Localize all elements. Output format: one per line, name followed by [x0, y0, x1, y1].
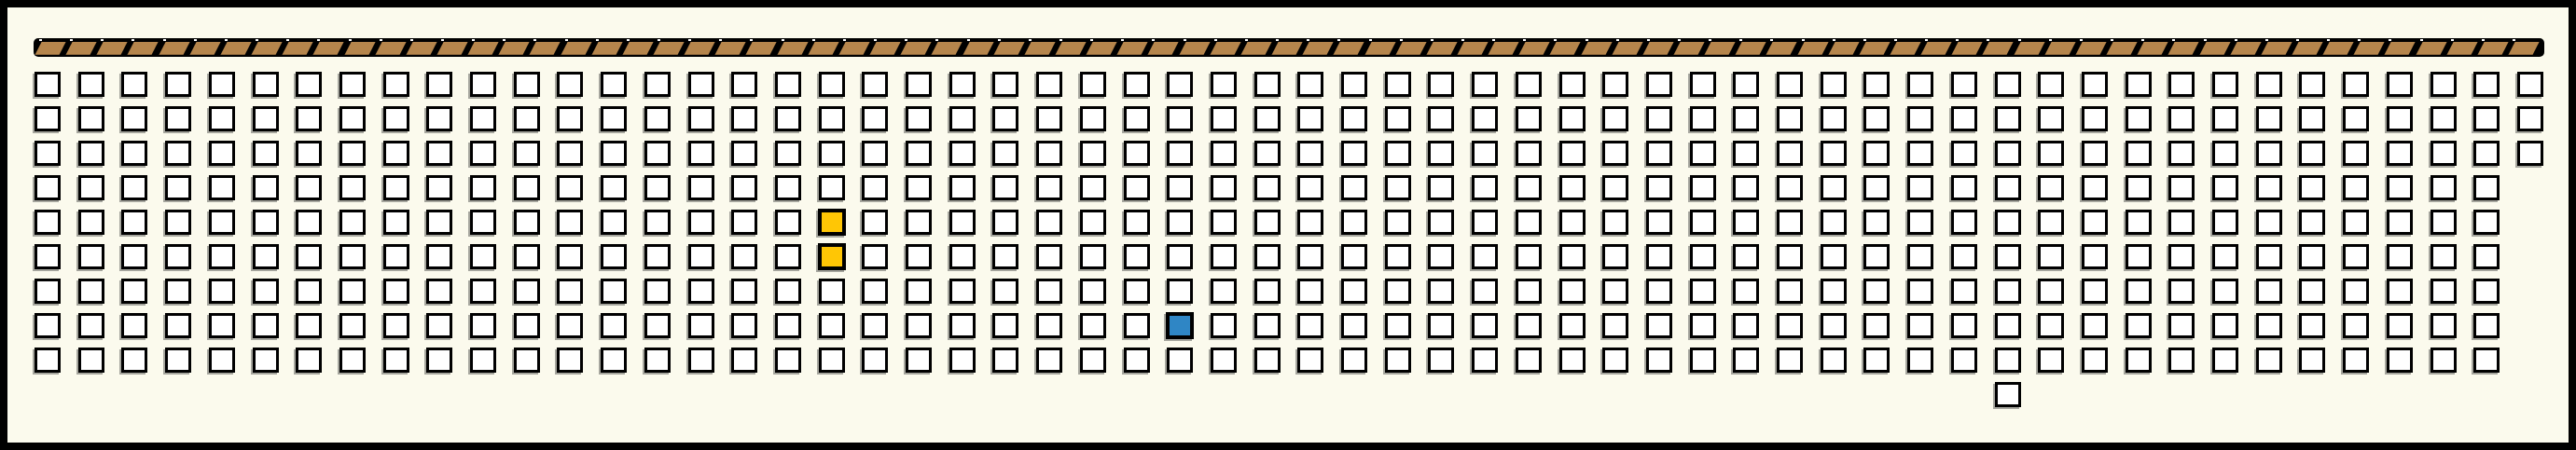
- seat[interactable]: [906, 313, 932, 338]
- seat-selected-yellow[interactable]: [818, 243, 846, 270]
- seat[interactable]: [2387, 72, 2413, 97]
- seat[interactable]: [253, 106, 279, 131]
- seat[interactable]: [557, 279, 583, 304]
- seat[interactable]: [992, 106, 1018, 131]
- seat[interactable]: [1472, 348, 1498, 373]
- seat[interactable]: [2126, 72, 2152, 97]
- seat[interactable]: [1690, 279, 1716, 304]
- seat[interactable]: [383, 348, 409, 373]
- seat[interactable]: [1733, 244, 1759, 269]
- seat[interactable]: [2038, 141, 2064, 166]
- seat[interactable]: [1124, 175, 1150, 200]
- seat[interactable]: [1385, 244, 1411, 269]
- seat[interactable]: [1297, 244, 1323, 269]
- seat[interactable]: [1863, 175, 1890, 200]
- seat[interactable]: [253, 244, 279, 269]
- seat[interactable]: [1341, 141, 1367, 166]
- seat[interactable]: [1254, 348, 1281, 373]
- seat[interactable]: [862, 72, 888, 97]
- seat[interactable]: [2343, 244, 2369, 269]
- seat[interactable]: [209, 279, 235, 304]
- seat[interactable]: [2038, 72, 2064, 97]
- seat[interactable]: [1080, 313, 1106, 338]
- seat[interactable]: [514, 244, 540, 269]
- seat[interactable]: [2126, 244, 2152, 269]
- seat[interactable]: [2168, 348, 2195, 373]
- seat[interactable]: [601, 175, 627, 200]
- seat[interactable]: [1559, 279, 1586, 304]
- seat[interactable]: [2168, 210, 2195, 235]
- seat[interactable]: [383, 244, 409, 269]
- seat[interactable]: [557, 72, 583, 97]
- seat[interactable]: [688, 175, 714, 200]
- seat[interactable]: [906, 106, 932, 131]
- seat[interactable]: [2082, 106, 2108, 131]
- seat[interactable]: [1777, 72, 1803, 97]
- seat[interactable]: [819, 175, 845, 200]
- seat[interactable]: [1821, 106, 1847, 131]
- seat[interactable]: [1254, 279, 1281, 304]
- seat[interactable]: [2126, 175, 2152, 200]
- seat[interactable]: [1821, 348, 1847, 373]
- seat[interactable]: [1472, 175, 1498, 200]
- seat[interactable]: [514, 348, 540, 373]
- seat[interactable]: [1124, 348, 1150, 373]
- seat[interactable]: [1951, 279, 1977, 304]
- seat[interactable]: [601, 210, 627, 235]
- seat[interactable]: [1167, 175, 1193, 200]
- seat[interactable]: [35, 210, 61, 235]
- seat[interactable]: [949, 72, 976, 97]
- seat[interactable]: [121, 244, 147, 269]
- seat[interactable]: [1341, 313, 1367, 338]
- seat[interactable]: [1080, 72, 1106, 97]
- seat[interactable]: [1036, 313, 1062, 338]
- seat[interactable]: [296, 141, 322, 166]
- seat[interactable]: [2473, 175, 2500, 200]
- seat[interactable]: [2431, 313, 2457, 338]
- seat[interactable]: [819, 279, 845, 304]
- seat[interactable]: [1907, 279, 1933, 304]
- seat[interactable]: [1516, 244, 1542, 269]
- seat[interactable]: [1297, 72, 1323, 97]
- seat[interactable]: [1602, 244, 1628, 269]
- seat[interactable]: [1428, 279, 1454, 304]
- seat[interactable]: [2299, 210, 2325, 235]
- seat[interactable]: [383, 313, 409, 338]
- seat-occupied-blue[interactable]: [1166, 312, 1194, 339]
- seat[interactable]: [514, 141, 540, 166]
- seat[interactable]: [906, 244, 932, 269]
- seat[interactable]: [1821, 72, 1847, 97]
- seat[interactable]: [819, 72, 845, 97]
- seat[interactable]: [165, 72, 191, 97]
- seat[interactable]: [949, 279, 976, 304]
- seat[interactable]: [1385, 210, 1411, 235]
- seat[interactable]: [1951, 106, 1977, 131]
- seat[interactable]: [2299, 175, 2325, 200]
- seat[interactable]: [1995, 106, 2021, 131]
- seat[interactable]: [78, 313, 104, 338]
- seat-detached[interactable]: [1995, 382, 2021, 407]
- seat[interactable]: [1254, 244, 1281, 269]
- seat[interactable]: [470, 244, 496, 269]
- seat[interactable]: [514, 313, 540, 338]
- seat[interactable]: [2473, 141, 2500, 166]
- seat[interactable]: [1995, 175, 2021, 200]
- seat[interactable]: [1863, 106, 1890, 131]
- seat[interactable]: [1211, 141, 1237, 166]
- seat[interactable]: [1124, 244, 1150, 269]
- seat[interactable]: [1211, 72, 1237, 97]
- seat[interactable]: [339, 106, 366, 131]
- seat[interactable]: [165, 106, 191, 131]
- seat[interactable]: [2256, 210, 2282, 235]
- seat[interactable]: [1951, 175, 1977, 200]
- seat[interactable]: [862, 175, 888, 200]
- seat[interactable]: [992, 72, 1018, 97]
- seat[interactable]: [514, 175, 540, 200]
- seat[interactable]: [1036, 106, 1062, 131]
- seat[interactable]: [644, 210, 671, 235]
- seat[interactable]: [165, 210, 191, 235]
- seat[interactable]: [731, 210, 757, 235]
- seat[interactable]: [2126, 279, 2152, 304]
- seat[interactable]: [1995, 210, 2021, 235]
- seat[interactable]: [209, 313, 235, 338]
- seat[interactable]: [2387, 175, 2413, 200]
- seat[interactable]: [1516, 279, 1542, 304]
- seat[interactable]: [2387, 141, 2413, 166]
- seat[interactable]: [470, 175, 496, 200]
- seat[interactable]: [165, 175, 191, 200]
- seat[interactable]: [1124, 210, 1150, 235]
- seat[interactable]: [1080, 279, 1106, 304]
- seat[interactable]: [2038, 279, 2064, 304]
- seat[interactable]: [1559, 313, 1586, 338]
- seat[interactable]: [1602, 348, 1628, 373]
- seat[interactable]: [2168, 175, 2195, 200]
- seat[interactable]: [2082, 313, 2108, 338]
- seat[interactable]: [1777, 210, 1803, 235]
- seat[interactable]: [1863, 313, 1890, 338]
- seat[interactable]: [35, 141, 61, 166]
- seat[interactable]: [78, 348, 104, 373]
- seat[interactable]: [1646, 244, 1672, 269]
- seat[interactable]: [1472, 279, 1498, 304]
- seat[interactable]: [426, 313, 452, 338]
- seat[interactable]: [1690, 313, 1716, 338]
- seat[interactable]: [1211, 348, 1237, 373]
- seat[interactable]: [688, 210, 714, 235]
- seat[interactable]: [1646, 210, 1672, 235]
- seat[interactable]: [1254, 106, 1281, 131]
- seat[interactable]: [1428, 175, 1454, 200]
- seat[interactable]: [775, 106, 801, 131]
- seat[interactable]: [1995, 244, 2021, 269]
- seat[interactable]: [819, 141, 845, 166]
- seat[interactable]: [253, 313, 279, 338]
- seat[interactable]: [121, 72, 147, 97]
- seat[interactable]: [2431, 210, 2457, 235]
- seat[interactable]: [644, 106, 671, 131]
- seat[interactable]: [1907, 175, 1933, 200]
- seat[interactable]: [819, 106, 845, 131]
- seat[interactable]: [1472, 106, 1498, 131]
- seat[interactable]: [1254, 313, 1281, 338]
- seat[interactable]: [209, 141, 235, 166]
- seat[interactable]: [426, 175, 452, 200]
- seat[interactable]: [1341, 244, 1367, 269]
- seat[interactable]: [862, 348, 888, 373]
- seat[interactable]: [1733, 348, 1759, 373]
- seat[interactable]: [2256, 72, 2282, 97]
- seat[interactable]: [209, 210, 235, 235]
- seat[interactable]: [1472, 72, 1498, 97]
- seat[interactable]: [1385, 279, 1411, 304]
- seat[interactable]: [339, 279, 366, 304]
- seat[interactable]: [253, 175, 279, 200]
- seat[interactable]: [731, 313, 757, 338]
- seat[interactable]: [949, 141, 976, 166]
- seat[interactable]: [1254, 175, 1281, 200]
- seat[interactable]: [731, 244, 757, 269]
- seat[interactable]: [2212, 72, 2238, 97]
- seat[interactable]: [426, 244, 452, 269]
- seat[interactable]: [35, 175, 61, 200]
- seat[interactable]: [2473, 313, 2500, 338]
- seat[interactable]: [992, 141, 1018, 166]
- seat[interactable]: [557, 313, 583, 338]
- seat[interactable]: [1036, 72, 1062, 97]
- seat[interactable]: [1080, 141, 1106, 166]
- seat[interactable]: [644, 72, 671, 97]
- seat[interactable]: [383, 210, 409, 235]
- seat[interactable]: [426, 210, 452, 235]
- seat[interactable]: [1080, 244, 1106, 269]
- seat[interactable]: [2473, 106, 2500, 131]
- seat[interactable]: [1472, 244, 1498, 269]
- seat[interactable]: [383, 279, 409, 304]
- seat[interactable]: [383, 72, 409, 97]
- seat[interactable]: [644, 313, 671, 338]
- seat[interactable]: [1254, 210, 1281, 235]
- seat[interactable]: [557, 141, 583, 166]
- seat[interactable]: [906, 72, 932, 97]
- seat[interactable]: [2212, 141, 2238, 166]
- seat[interactable]: [2082, 210, 2108, 235]
- seat[interactable]: [949, 313, 976, 338]
- seat[interactable]: [78, 210, 104, 235]
- seat[interactable]: [1777, 244, 1803, 269]
- seat[interactable]: [2168, 106, 2195, 131]
- seat[interactable]: [601, 348, 627, 373]
- seat[interactable]: [1646, 141, 1672, 166]
- seat[interactable]: [1907, 313, 1933, 338]
- seat[interactable]: [1472, 210, 1498, 235]
- seat[interactable]: [1777, 348, 1803, 373]
- seat[interactable]: [949, 348, 976, 373]
- seat[interactable]: [1211, 175, 1237, 200]
- seat[interactable]: [1167, 279, 1193, 304]
- seat[interactable]: [1124, 279, 1150, 304]
- seat[interactable]: [2431, 175, 2457, 200]
- seat[interactable]: [2431, 106, 2457, 131]
- seat[interactable]: [775, 313, 801, 338]
- seat[interactable]: [992, 313, 1018, 338]
- seat[interactable]: [2473, 348, 2500, 373]
- seat[interactable]: [862, 244, 888, 269]
- seat[interactable]: [1385, 141, 1411, 166]
- seat[interactable]: [296, 279, 322, 304]
- seat[interactable]: [731, 279, 757, 304]
- seat[interactable]: [2038, 348, 2064, 373]
- seat[interactable]: [121, 175, 147, 200]
- seat[interactable]: [2299, 244, 2325, 269]
- seat[interactable]: [1821, 141, 1847, 166]
- seat[interactable]: [688, 313, 714, 338]
- seat[interactable]: [1516, 141, 1542, 166]
- seat[interactable]: [1602, 279, 1628, 304]
- seat[interactable]: [78, 72, 104, 97]
- seat[interactable]: [2038, 175, 2064, 200]
- seat[interactable]: [1428, 348, 1454, 373]
- seat[interactable]: [253, 141, 279, 166]
- seat[interactable]: [2343, 313, 2369, 338]
- seat[interactable]: [1951, 141, 1977, 166]
- seat[interactable]: [1124, 72, 1150, 97]
- seat[interactable]: [165, 279, 191, 304]
- seat[interactable]: [2212, 175, 2238, 200]
- seat[interactable]: [2168, 72, 2195, 97]
- seat[interactable]: [2431, 244, 2457, 269]
- seat[interactable]: [1646, 106, 1672, 131]
- seat[interactable]: [514, 279, 540, 304]
- seat[interactable]: [35, 313, 61, 338]
- seat[interactable]: [819, 313, 845, 338]
- seat[interactable]: [2387, 244, 2413, 269]
- seat[interactable]: [1167, 72, 1193, 97]
- seat[interactable]: [906, 279, 932, 304]
- seat[interactable]: [906, 210, 932, 235]
- seat[interactable]: [2387, 348, 2413, 373]
- seat[interactable]: [1995, 279, 2021, 304]
- seat[interactable]: [35, 244, 61, 269]
- seat[interactable]: [296, 210, 322, 235]
- seat[interactable]: [1863, 141, 1890, 166]
- seat[interactable]: [1472, 141, 1498, 166]
- seat[interactable]: [1907, 348, 1933, 373]
- seat[interactable]: [2126, 106, 2152, 131]
- seat[interactable]: [1341, 279, 1367, 304]
- seat[interactable]: [2299, 348, 2325, 373]
- seat[interactable]: [1385, 106, 1411, 131]
- seat[interactable]: [1602, 72, 1628, 97]
- seat[interactable]: [1559, 348, 1586, 373]
- seat[interactable]: [1080, 175, 1106, 200]
- seat[interactable]: [644, 141, 671, 166]
- seat[interactable]: [1385, 175, 1411, 200]
- seat[interactable]: [253, 279, 279, 304]
- seat[interactable]: [1167, 106, 1193, 131]
- seat[interactable]: [688, 279, 714, 304]
- seat[interactable]: [775, 141, 801, 166]
- seat[interactable]: [2126, 348, 2152, 373]
- seat[interactable]: [1297, 210, 1323, 235]
- seat[interactable]: [601, 313, 627, 338]
- seat[interactable]: [644, 279, 671, 304]
- seat[interactable]: [1080, 210, 1106, 235]
- seat[interactable]: [1211, 106, 1237, 131]
- seat[interactable]: [2256, 106, 2282, 131]
- seat[interactable]: [1821, 210, 1847, 235]
- seat[interactable]: [1907, 141, 1933, 166]
- seat[interactable]: [2126, 210, 2152, 235]
- seat[interactable]: [1733, 72, 1759, 97]
- seat[interactable]: [1341, 348, 1367, 373]
- seat[interactable]: [862, 106, 888, 131]
- seat[interactable]: [601, 141, 627, 166]
- seat[interactable]: [383, 175, 409, 200]
- seat[interactable]: [296, 313, 322, 338]
- seat[interactable]: [2431, 72, 2457, 97]
- seat[interactable]: [1995, 313, 2021, 338]
- seat[interactable]: [1472, 313, 1498, 338]
- seat[interactable]: [2126, 141, 2152, 166]
- seat[interactable]: [1863, 210, 1890, 235]
- seat[interactable]: [1297, 141, 1323, 166]
- seat[interactable]: [2256, 313, 2282, 338]
- seat[interactable]: [2212, 279, 2238, 304]
- seat[interactable]: [78, 175, 104, 200]
- seat[interactable]: [2387, 279, 2413, 304]
- seat[interactable]: [426, 106, 452, 131]
- seat[interactable]: [339, 210, 366, 235]
- seat[interactable]: [2299, 141, 2325, 166]
- seat[interactable]: [165, 348, 191, 373]
- seat[interactable]: [426, 72, 452, 97]
- seat[interactable]: [2473, 244, 2500, 269]
- seat[interactable]: [731, 141, 757, 166]
- seat[interactable]: [1211, 244, 1237, 269]
- seat[interactable]: [1646, 279, 1672, 304]
- seat[interactable]: [2256, 175, 2282, 200]
- seat[interactable]: [1297, 106, 1323, 131]
- seat[interactable]: [688, 348, 714, 373]
- seat[interactable]: [862, 141, 888, 166]
- seat[interactable]: [1821, 313, 1847, 338]
- seat[interactable]: [2431, 141, 2457, 166]
- seat[interactable]: [296, 175, 322, 200]
- seat[interactable]: [1690, 210, 1716, 235]
- seat[interactable]: [862, 279, 888, 304]
- seat[interactable]: [862, 313, 888, 338]
- seat[interactable]: [339, 175, 366, 200]
- seat[interactable]: [2256, 348, 2282, 373]
- seat[interactable]: [1211, 210, 1237, 235]
- seat[interactable]: [339, 141, 366, 166]
- seat[interactable]: [1821, 175, 1847, 200]
- seat[interactable]: [1341, 175, 1367, 200]
- seat[interactable]: [601, 72, 627, 97]
- seat[interactable]: [2256, 279, 2282, 304]
- seat[interactable]: [1297, 348, 1323, 373]
- seat[interactable]: [470, 210, 496, 235]
- seat[interactable]: [383, 141, 409, 166]
- seat[interactable]: [470, 141, 496, 166]
- seat[interactable]: [2038, 210, 2064, 235]
- seat[interactable]: [2517, 106, 2543, 131]
